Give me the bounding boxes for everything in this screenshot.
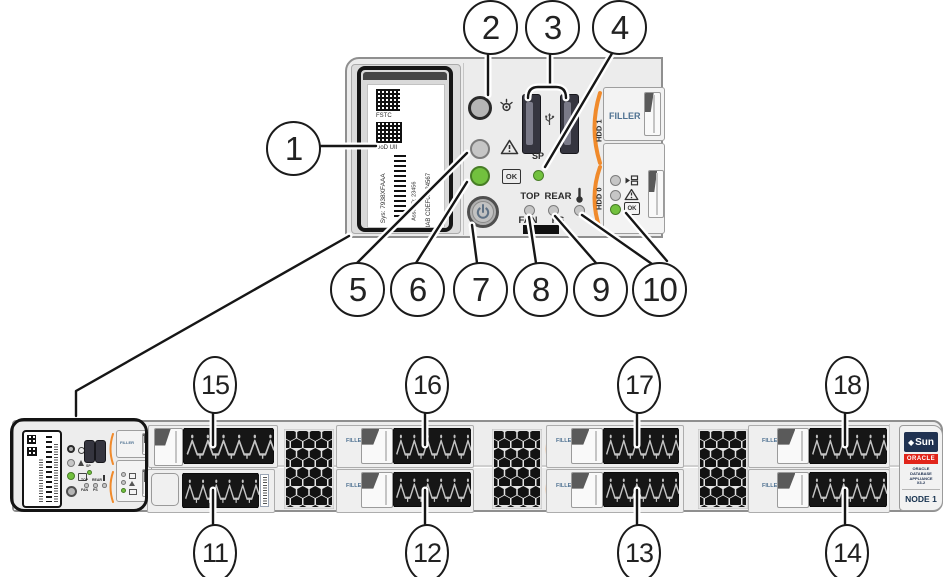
eject-disk-icon: [624, 174, 639, 187]
drive-grille: [182, 473, 259, 508]
oracle-logo-text: ORACLE: [907, 456, 935, 462]
callout-17: 17: [617, 356, 661, 414]
hdd0-label: HDD 0: [595, 182, 603, 216]
rear-label: REAR: [543, 192, 573, 202]
node-label: NODE 1: [902, 489, 940, 504]
drive-latch: [361, 472, 393, 508]
drive-latch: [777, 428, 809, 464]
callout-15: 15: [193, 356, 237, 414]
serial-number-text: 3AB CDEF01234567: [426, 103, 432, 228]
drive-grille: [809, 428, 887, 464]
usb-icon: [544, 112, 555, 127]
fault-led: [470, 139, 490, 159]
top-label: TOP: [518, 192, 542, 202]
usb-port: [522, 94, 541, 154]
drive-ok-led: [610, 204, 621, 215]
filler-bay: FILLER: [603, 87, 665, 141]
sun-logo-text: Sun: [915, 437, 934, 448]
callout-2: 2: [463, 0, 518, 55]
drive-grille: [603, 472, 679, 507]
callout-8: 8: [513, 262, 568, 317]
locate-button: [468, 96, 492, 120]
callout-13: 13: [617, 524, 661, 577]
barcode: [394, 155, 406, 217]
drive-latch: [648, 170, 664, 218]
ok-led: [470, 166, 490, 186]
drive-latch: [571, 472, 603, 508]
callout-14: 14: [825, 524, 869, 577]
drive-grille: [393, 472, 471, 507]
drive-release-button: [151, 473, 179, 506]
chassis-seam: [889, 424, 890, 510]
filler-label: FILLER: [609, 112, 641, 121]
rear-ps-led: [548, 205, 559, 216]
sp-led: [533, 170, 544, 181]
callout-6: 6: [390, 262, 445, 317]
drive-fault-led: [610, 190, 621, 201]
ok-icon: OK: [502, 169, 521, 184]
sys-serial-text: Sys: 7938XFAAA: [381, 151, 388, 223]
callout-16: 16: [405, 356, 449, 414]
honeycomb-vent: [492, 429, 542, 509]
product-name: ORACLE DATABASE APPLIANCE X3-2: [902, 467, 940, 486]
service-label: FSTC DoD UII Sys: 7938XFAAA Asset ID: 23…: [367, 84, 445, 228]
datamatrix-code: [376, 89, 400, 111]
drive-grille: [183, 428, 274, 464]
overtemp-led: [574, 205, 585, 216]
callout-18: 18: [825, 356, 869, 414]
drive-bay-hdd0: OK: [603, 143, 665, 234]
service-label-tag: FSTC DoD UII Sys: 7938XFAAA Asset ID: 23…: [357, 66, 453, 232]
callout-12: 12: [405, 524, 449, 577]
sun-logo: ◆ Sun: [904, 432, 938, 452]
callout-5: 5: [330, 262, 385, 317]
callout-3: 3: [525, 0, 580, 55]
warning-triangle-icon: [624, 188, 639, 201]
diagram-canvas: FSTC DoD UII Sys: 7938XFAAA Asset ID: 23…: [0, 0, 947, 577]
locate-icon: [499, 98, 514, 113]
panel-divider: [463, 63, 464, 235]
sun-diamond-icon: ◆: [908, 438, 914, 447]
datamatrix-code: [376, 122, 402, 143]
front-panel-detail-view: FSTC DoD UII Sys: 7938XFAAA Asset ID: 23…: [345, 57, 663, 238]
callout-11: 11: [193, 524, 237, 577]
drive-latch: [154, 428, 183, 466]
drive-ready-remove-led: [610, 175, 621, 186]
tag-handle: [363, 72, 447, 80]
warning-triangle-icon: [500, 139, 519, 155]
drive-latch: [777, 472, 809, 508]
honeycomb-vent: [698, 429, 748, 509]
hdd1-label: HDD 1: [595, 114, 603, 148]
ok-icon: OK: [624, 202, 640, 215]
drive-latch: [361, 428, 393, 464]
server-front-view: SP TOP REAR FAN PS FILLER HDD HDD FILL: [12, 420, 943, 512]
power-icon: [476, 204, 490, 220]
drive-latch: [571, 428, 603, 464]
drive-grille: [809, 472, 887, 507]
drive-grille: [393, 428, 471, 464]
thermometer-icon: [575, 187, 584, 204]
oracle-logo: ORACLE: [904, 454, 938, 464]
dod-uii-label: DoD UII: [376, 145, 397, 151]
fstc-label: FSTC: [376, 113, 392, 119]
drive-label-strip: [260, 474, 269, 507]
chassis-notch: [523, 225, 559, 234]
power-button: [467, 196, 499, 228]
callout-10: 10: [632, 262, 687, 317]
badge-panel: ◆ Sun ORACLE ORACLE DATABASE APPLIANCE X…: [899, 425, 943, 511]
asset-id-text: Asset ID: 23456: [412, 155, 418, 221]
honeycomb-vent: [284, 429, 334, 509]
sp-label: SP: [527, 152, 549, 161]
usb-port: [560, 94, 579, 154]
drive-latch: [644, 92, 661, 136]
callout-7: 7: [453, 262, 508, 317]
callout-1: 1: [266, 121, 321, 176]
top-fan-led: [524, 205, 535, 216]
detail-region-outline: [10, 418, 148, 512]
callout-4: 4: [592, 0, 647, 55]
drive-grille: [603, 428, 679, 464]
callout-9: 9: [573, 262, 628, 317]
